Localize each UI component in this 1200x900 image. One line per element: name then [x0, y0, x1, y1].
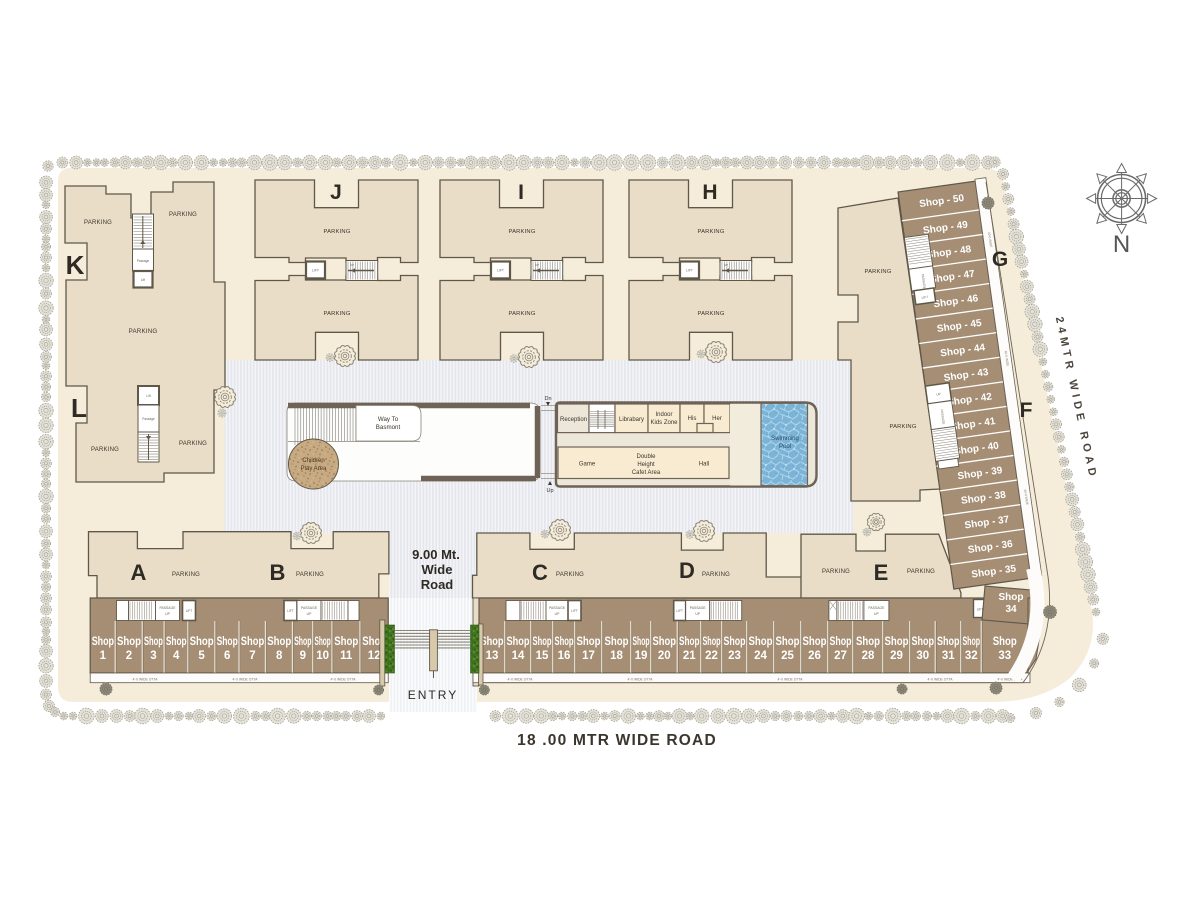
svg-text:PARKING: PARKING [323, 229, 350, 235]
svg-text:Game: Game [579, 462, 596, 468]
svg-text:UP: UP [535, 263, 539, 267]
svg-text:Play Area: Play Area [301, 466, 327, 472]
svg-text:5: 5 [198, 650, 205, 662]
svg-text:29: 29 [890, 650, 903, 662]
svg-text:Indoor: Indoor [655, 412, 672, 418]
svg-text:LIFT: LIFT [676, 609, 683, 613]
svg-text:Up: Up [546, 488, 553, 494]
svg-text:34: 34 [1005, 604, 1017, 615]
svg-text:4'-0 WIDE OTTA: 4'-0 WIDE OTTA [927, 678, 953, 682]
svg-text:Shop: Shop [653, 636, 677, 648]
svg-text:E: E [874, 560, 889, 585]
svg-text:17: 17 [582, 650, 595, 662]
svg-text:Swimming: Swimming [771, 436, 799, 442]
svg-text:PARKING: PARKING [129, 328, 158, 335]
svg-text:12: 12 [368, 650, 381, 662]
svg-text:Shop: Shop [963, 636, 981, 648]
svg-text:PARKING: PARKING [169, 212, 197, 218]
svg-text:Shop: Shop [605, 636, 629, 648]
svg-text:32: 32 [965, 650, 978, 662]
svg-text:PARKING: PARKING [172, 572, 200, 578]
svg-text:25: 25 [781, 650, 794, 662]
svg-text:PARKING: PARKING [91, 447, 119, 453]
svg-text:Shop: Shop [885, 636, 909, 648]
svg-text:33: 33 [998, 650, 1011, 662]
svg-text:UP: UP [724, 263, 728, 267]
svg-text:Lift: Lift [146, 394, 150, 398]
svg-text:Shop: Shop [724, 636, 746, 648]
svg-text:22: 22 [705, 650, 718, 662]
svg-text:ENTRY: ENTRY [408, 688, 458, 702]
svg-text:Shop: Shop [803, 636, 827, 648]
svg-text:Passage: Passage [142, 417, 155, 421]
svg-text:Cafet Area: Cafet Area [632, 470, 661, 476]
svg-text:2: 2 [126, 650, 132, 662]
svg-text:PASSAGE: PASSAGE [549, 606, 566, 610]
svg-text:Shop: Shop [633, 636, 650, 648]
svg-text:LIFT: LIFT [571, 609, 578, 613]
svg-text:G: G [992, 248, 1008, 271]
svg-text:10: 10 [316, 650, 329, 662]
svg-text:Shop: Shop [267, 636, 291, 648]
svg-text:Shop: Shop [703, 636, 721, 648]
svg-text:K: K [66, 250, 85, 280]
svg-text:Shop: Shop [856, 636, 880, 648]
svg-text:Shop: Shop [294, 636, 311, 648]
svg-text:PARKING: PARKING [889, 424, 916, 430]
svg-text:LIFT: LIFT [497, 269, 504, 273]
svg-text:19: 19 [635, 650, 648, 662]
svg-text:PARKING: PARKING [864, 269, 891, 275]
svg-text:Passage: Passage [137, 259, 150, 263]
svg-text:4'-0 WIDE OTTA: 4'-0 WIDE OTTA [507, 678, 533, 682]
svg-text:26: 26 [808, 650, 821, 662]
svg-text:Shop: Shop [679, 636, 700, 648]
svg-text:PARKING: PARKING [702, 572, 730, 578]
svg-text:Pool: Pool [779, 444, 791, 450]
svg-text:His: His [688, 416, 697, 422]
svg-text:C: C [532, 560, 548, 585]
svg-text:J: J [330, 181, 342, 204]
svg-text:Shop: Shop [144, 636, 163, 648]
svg-text:N: N [1113, 231, 1130, 258]
svg-text:7: 7 [249, 650, 255, 662]
svg-text:Basmont: Basmont [376, 424, 401, 431]
svg-text:Shop: Shop [830, 636, 852, 648]
svg-text:PARKING: PARKING [508, 311, 535, 317]
svg-text:B: B [270, 560, 286, 585]
svg-text:Road: Road [421, 577, 454, 592]
svg-text:Wide: Wide [422, 562, 453, 577]
svg-text:1: 1 [100, 650, 107, 662]
svg-text:18 .00 MTR WIDE ROAD: 18 .00 MTR WIDE ROAD [517, 732, 717, 749]
svg-text:13: 13 [486, 650, 499, 662]
svg-text:Children: Children [302, 458, 324, 464]
svg-text:28: 28 [862, 650, 875, 662]
svg-text:30: 30 [916, 650, 929, 662]
svg-text:Lift: Lift [141, 278, 145, 282]
svg-text:Shop: Shop [937, 636, 960, 648]
svg-text:LIFT: LIFT [312, 269, 319, 273]
svg-text:Reception: Reception [560, 417, 587, 423]
svg-text:Shop: Shop [912, 636, 935, 648]
svg-text:Shop: Shop [190, 636, 214, 648]
svg-text:27: 27 [834, 650, 847, 662]
svg-text:PARKING: PARKING [697, 311, 724, 317]
svg-text:PASSAGE: PASSAGE [301, 606, 318, 610]
svg-text:Shop: Shop [481, 636, 504, 648]
svg-text:H: H [702, 181, 717, 204]
svg-text:UP: UP [165, 612, 170, 616]
svg-text:PASSAGE: PASSAGE [160, 606, 177, 610]
svg-text:PARKING: PARKING [907, 569, 935, 575]
svg-text:9.00 Mt.: 9.00 Mt. [412, 547, 460, 562]
svg-text:PARKING: PARKING [323, 311, 350, 317]
svg-text:6: 6 [224, 650, 230, 662]
svg-text:Double: Double [636, 454, 656, 460]
svg-text:UP: UP [350, 263, 354, 267]
svg-text:Shop: Shop [241, 636, 264, 648]
svg-text:14: 14 [512, 650, 525, 662]
svg-text:3: 3 [150, 650, 156, 662]
svg-text:Shop: Shop [999, 592, 1024, 603]
svg-text:Kids Zone: Kids Zone [650, 420, 678, 426]
svg-text:Shop: Shop [555, 636, 574, 648]
svg-text:18: 18 [610, 650, 623, 662]
svg-text:Shop: Shop [117, 636, 141, 648]
svg-text:4'-0 WIDE OTTA: 4'-0 WIDE OTTA [132, 678, 158, 682]
svg-text:24: 24 [754, 650, 767, 662]
svg-text:Shop: Shop [749, 636, 773, 648]
svg-text:PARKING: PARKING [556, 572, 584, 578]
svg-text:Shop: Shop [993, 636, 1017, 648]
svg-text:D: D [679, 558, 695, 583]
svg-text:4'-0 WIDE OTTA: 4'-0 WIDE OTTA [777, 678, 803, 682]
svg-text:F: F [1020, 399, 1033, 422]
svg-text:UP: UP [555, 612, 560, 616]
svg-text:Shop: Shop [577, 636, 601, 648]
svg-text:UP: UP [695, 612, 700, 616]
svg-text:LIFT: LIFT [686, 269, 693, 273]
svg-text:4'-0 WIDE OTTA: 4'-0 WIDE OTTA [232, 678, 258, 682]
svg-text:11: 11 [340, 650, 353, 662]
svg-text:Way To: Way To [378, 416, 399, 423]
svg-text:Shop: Shop [315, 636, 331, 648]
svg-text:Shop: Shop [166, 636, 187, 648]
svg-text:LIFT: LIFT [186, 609, 193, 613]
svg-text:Hall: Hall [699, 462, 709, 468]
svg-text:Height: Height [637, 462, 655, 468]
svg-text:Shop: Shop [217, 636, 238, 648]
svg-text:16: 16 [558, 650, 571, 662]
svg-text:Librabary: Librabary [619, 417, 644, 423]
svg-text:PARKING: PARKING [697, 229, 724, 235]
svg-text:PARKING: PARKING [296, 572, 324, 578]
svg-text:A: A [131, 560, 147, 585]
svg-text:Shop: Shop [776, 636, 800, 648]
svg-text:4: 4 [173, 650, 180, 662]
svg-text:21: 21 [683, 650, 696, 662]
svg-text:31: 31 [942, 650, 955, 662]
svg-text:Shop: Shop [92, 636, 114, 648]
svg-text:9: 9 [300, 650, 306, 662]
svg-text:Shop: Shop [507, 636, 530, 648]
svg-text:Dn: Dn [544, 396, 551, 402]
svg-text:Her: Her [712, 416, 722, 422]
svg-text:Shop: Shop [533, 636, 552, 648]
svg-text:PARKING: PARKING [84, 220, 112, 226]
svg-text:Shop: Shop [334, 636, 358, 648]
svg-text:UP: UP [874, 612, 879, 616]
svg-text:PASSAGE: PASSAGE [690, 606, 707, 610]
svg-text:4'-0 WIDE OTTA: 4'-0 WIDE OTTA [330, 678, 356, 682]
svg-text:20: 20 [658, 650, 671, 662]
svg-text:PARKING: PARKING [822, 569, 850, 575]
svg-text:4'-0 WIDE OTTA: 4'-0 WIDE OTTA [627, 678, 653, 682]
svg-text:PARKING: PARKING [508, 229, 535, 235]
svg-text:PASSAGE: PASSAGE [868, 606, 885, 610]
svg-text:PARKING: PARKING [179, 441, 207, 447]
svg-text:L: L [71, 393, 87, 423]
svg-text:UP: UP [936, 392, 941, 397]
svg-text:15: 15 [536, 650, 549, 662]
svg-text:I: I [518, 181, 524, 204]
svg-text:8: 8 [276, 650, 283, 662]
svg-text:UP: UP [307, 612, 312, 616]
svg-text:23: 23 [728, 650, 741, 662]
svg-text:LIFT: LIFT [287, 609, 294, 613]
